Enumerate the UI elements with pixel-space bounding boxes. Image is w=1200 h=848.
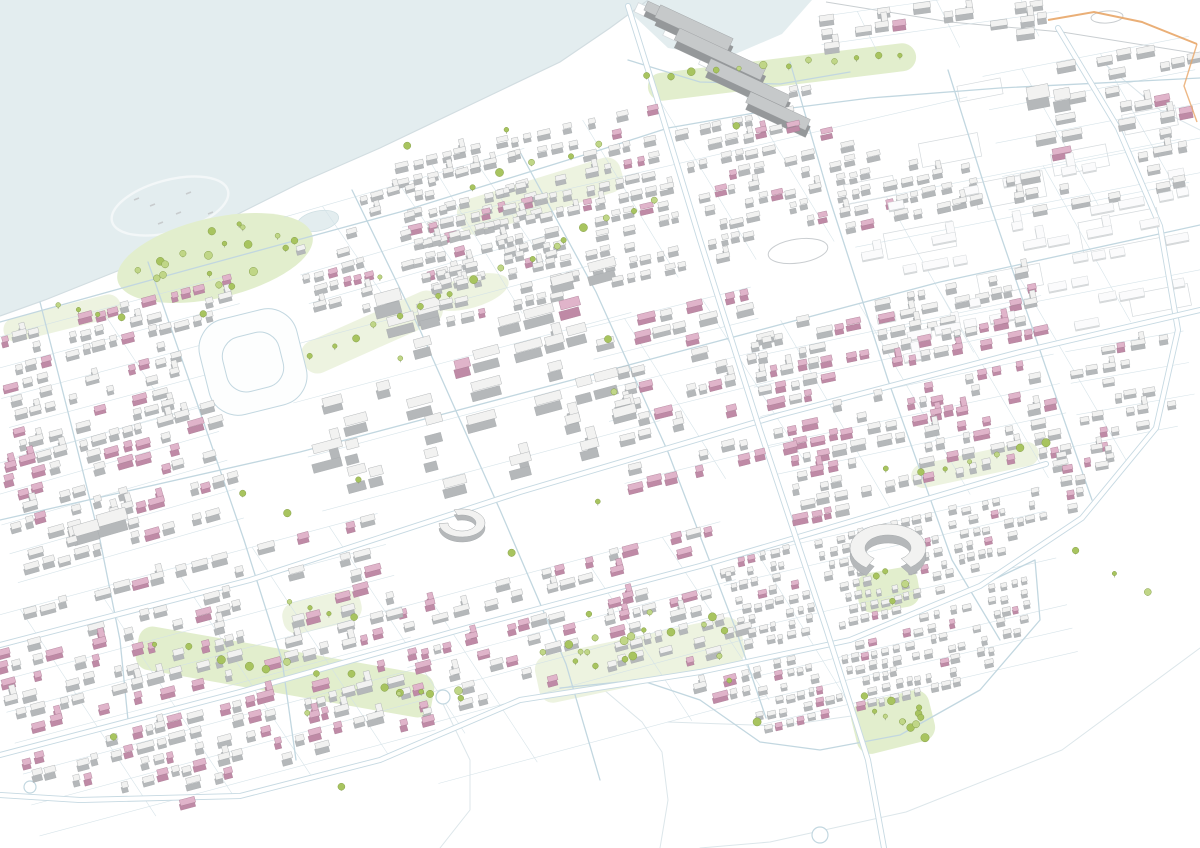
building (376, 380, 391, 400)
building (907, 676, 913, 686)
building (627, 273, 635, 284)
building (808, 603, 815, 613)
building (789, 594, 799, 604)
building (840, 206, 851, 218)
building (731, 583, 737, 592)
building (1015, 316, 1026, 328)
building (947, 450, 959, 462)
building (447, 316, 456, 328)
building (747, 567, 753, 576)
building (744, 639, 753, 650)
building (946, 282, 957, 295)
tree (381, 684, 389, 692)
building (819, 14, 834, 27)
building (19, 439, 27, 452)
building (811, 674, 820, 684)
building (1021, 589, 1028, 598)
building (824, 41, 839, 54)
building (803, 452, 811, 463)
building (816, 492, 829, 506)
building (443, 167, 454, 179)
building (1061, 475, 1073, 487)
building (32, 768, 43, 783)
building (633, 608, 641, 618)
building (792, 483, 799, 496)
building (1111, 426, 1119, 436)
tree (887, 697, 895, 705)
building (934, 610, 940, 619)
building (83, 343, 91, 355)
building (848, 458, 856, 469)
building (132, 642, 144, 657)
building (704, 526, 713, 538)
building (931, 634, 937, 644)
building (660, 308, 673, 322)
building (69, 331, 77, 344)
building (60, 696, 69, 710)
building (439, 205, 447, 216)
building (720, 218, 728, 230)
building (840, 427, 853, 440)
building (988, 596, 996, 605)
building (893, 655, 902, 666)
building (994, 610, 1001, 619)
building (1003, 628, 1012, 639)
building (824, 571, 833, 582)
building (881, 609, 888, 619)
building (235, 565, 244, 577)
building (232, 700, 241, 714)
building (909, 355, 916, 366)
building (754, 603, 762, 613)
building (109, 427, 120, 442)
tree (249, 267, 257, 275)
building (4, 473, 15, 488)
building (1014, 191, 1024, 204)
building (414, 159, 424, 170)
building (678, 261, 686, 271)
building (828, 460, 838, 473)
building (988, 584, 995, 593)
building (942, 328, 952, 341)
building (925, 512, 932, 522)
building (950, 653, 960, 664)
tree (912, 721, 919, 729)
building (875, 21, 889, 33)
building (868, 638, 877, 647)
building (725, 571, 731, 581)
building (931, 683, 939, 693)
building (924, 649, 933, 660)
building (973, 625, 981, 634)
building (956, 467, 964, 478)
building (1138, 151, 1148, 162)
map-viewport[interactable] (0, 0, 1200, 848)
building (426, 154, 438, 166)
building (846, 593, 852, 602)
building (791, 580, 799, 590)
building (624, 159, 633, 169)
city-map-3d-render (0, 0, 1200, 848)
building (951, 605, 958, 615)
building (515, 233, 524, 245)
building (846, 351, 857, 362)
building (758, 686, 768, 696)
building (215, 772, 224, 785)
building (415, 190, 423, 201)
building (912, 652, 920, 661)
building (1084, 457, 1091, 467)
building (1062, 464, 1073, 474)
building (1173, 175, 1186, 189)
building (840, 582, 849, 592)
building (525, 214, 535, 225)
building (971, 384, 980, 396)
building (356, 257, 364, 269)
building (747, 353, 757, 365)
building (319, 641, 328, 655)
tree (204, 251, 212, 259)
building (992, 366, 1001, 376)
building (443, 642, 452, 654)
building (120, 301, 129, 314)
building (809, 687, 815, 697)
building (949, 520, 957, 529)
building (749, 180, 760, 192)
building (122, 425, 133, 438)
building (456, 215, 466, 227)
building (114, 665, 122, 678)
building (604, 163, 611, 174)
building (992, 498, 1000, 507)
building (851, 652, 859, 663)
building (893, 644, 900, 653)
building (303, 274, 311, 284)
building (657, 251, 664, 262)
building (1116, 47, 1131, 61)
building (909, 159, 918, 171)
building (146, 724, 154, 736)
building (825, 695, 835, 705)
building (806, 664, 813, 672)
building (899, 475, 909, 488)
building (22, 758, 31, 771)
building (955, 7, 973, 21)
tree (620, 637, 628, 645)
building (1044, 398, 1057, 412)
building (525, 295, 534, 307)
building (952, 343, 963, 356)
building (865, 589, 871, 597)
building (282, 752, 293, 767)
building (953, 677, 961, 687)
building (869, 660, 877, 671)
building (619, 192, 629, 203)
tree (162, 261, 169, 269)
building (980, 339, 992, 351)
building (171, 291, 178, 302)
building (155, 721, 166, 734)
building (730, 688, 738, 700)
building (773, 573, 781, 582)
building (932, 535, 939, 544)
building (842, 543, 850, 554)
building (232, 713, 244, 728)
building (1121, 359, 1130, 369)
building (109, 335, 117, 348)
building (941, 560, 947, 569)
building (957, 420, 966, 431)
building (679, 623, 689, 636)
building (944, 404, 954, 417)
tree (667, 628, 675, 636)
building (523, 133, 531, 143)
building (745, 198, 754, 209)
building (982, 416, 991, 426)
tree (208, 227, 216, 235)
building (960, 529, 969, 539)
building (959, 554, 965, 564)
building (738, 557, 745, 568)
building (774, 428, 784, 439)
building (807, 215, 814, 227)
building (797, 667, 804, 676)
building (758, 589, 767, 599)
building (425, 190, 435, 201)
building (882, 659, 888, 669)
building (901, 337, 912, 350)
building (1015, 2, 1027, 15)
roundabout (812, 827, 828, 843)
building (783, 544, 790, 555)
building (1040, 512, 1048, 521)
building (428, 177, 436, 187)
building (569, 140, 578, 151)
building (545, 257, 555, 269)
building (774, 670, 783, 681)
building (753, 666, 761, 679)
building (504, 254, 513, 265)
building (821, 709, 830, 720)
building (1021, 15, 1035, 28)
building (157, 738, 167, 750)
building (883, 671, 889, 681)
building (638, 156, 645, 167)
building (808, 357, 819, 370)
tree (921, 734, 929, 742)
building (819, 551, 825, 561)
building (808, 712, 816, 721)
building (1100, 427, 1108, 438)
building (1026, 84, 1050, 111)
building (920, 396, 927, 408)
building (979, 323, 989, 333)
building (373, 627, 384, 640)
building (1080, 416, 1089, 425)
building (786, 608, 794, 618)
building (859, 349, 869, 360)
building (771, 561, 777, 572)
building (69, 393, 77, 405)
building (918, 290, 925, 301)
building (1115, 393, 1122, 404)
building (726, 404, 737, 419)
building (774, 658, 782, 669)
building (769, 585, 777, 595)
building (791, 455, 799, 466)
building (175, 563, 187, 578)
building (1068, 503, 1078, 514)
tree (217, 656, 225, 664)
building (863, 676, 870, 686)
building (617, 366, 630, 380)
building (329, 690, 338, 702)
building (454, 357, 471, 379)
building (1179, 106, 1193, 120)
building (945, 568, 953, 578)
building (555, 174, 566, 186)
building (991, 287, 1002, 301)
building (1020, 615, 1029, 624)
building (816, 686, 823, 695)
building (1008, 531, 1018, 542)
tree (1016, 444, 1024, 452)
building (984, 536, 992, 545)
tree (455, 687, 463, 695)
building (882, 683, 891, 692)
building (788, 668, 795, 676)
building (997, 547, 1006, 556)
building (798, 606, 804, 615)
building (861, 613, 870, 623)
building (801, 627, 810, 636)
building (346, 521, 356, 534)
building (934, 547, 943, 557)
building (515, 250, 524, 261)
building (422, 272, 431, 283)
building (1010, 298, 1022, 312)
building (969, 462, 977, 474)
building (1017, 517, 1024, 527)
building (764, 724, 773, 734)
building (1002, 606, 1011, 617)
building (815, 539, 823, 548)
building (848, 566, 855, 576)
building (797, 690, 805, 700)
tree (1042, 439, 1050, 447)
building (781, 683, 788, 692)
building (836, 693, 842, 702)
building (716, 359, 728, 374)
building (855, 25, 872, 37)
building (1004, 518, 1014, 529)
building (796, 315, 809, 328)
building (386, 591, 394, 605)
building (941, 680, 951, 690)
building (1086, 364, 1098, 376)
building (1007, 454, 1016, 465)
building (789, 620, 796, 629)
building (498, 239, 505, 250)
building (471, 143, 481, 155)
building (699, 384, 708, 395)
building (1060, 183, 1069, 195)
building (963, 432, 970, 444)
building (333, 721, 342, 734)
building (181, 287, 191, 299)
building (982, 527, 990, 536)
building (136, 500, 147, 513)
building (770, 622, 776, 632)
building (801, 85, 811, 96)
building (587, 185, 595, 197)
building (265, 709, 276, 722)
building (760, 550, 766, 560)
building (309, 710, 320, 724)
building (133, 725, 144, 739)
building (162, 463, 172, 475)
building (962, 447, 975, 460)
building (471, 212, 480, 223)
tree (245, 662, 253, 670)
building (421, 648, 429, 660)
building (837, 535, 846, 544)
building (83, 671, 95, 686)
building (705, 205, 715, 217)
building (304, 698, 312, 710)
building (740, 289, 749, 302)
building (984, 658, 993, 668)
tree (353, 335, 360, 343)
building (894, 595, 902, 605)
building (903, 628, 911, 638)
building (507, 236, 514, 247)
tree (629, 652, 637, 660)
tree (348, 670, 355, 678)
building (232, 748, 244, 762)
building (245, 695, 255, 708)
building (354, 274, 362, 285)
building (351, 568, 362, 583)
building (839, 621, 846, 629)
building (1021, 577, 1027, 586)
building (892, 585, 898, 594)
building (223, 766, 233, 779)
building (612, 129, 622, 140)
building (201, 639, 210, 653)
building (699, 159, 707, 170)
building (989, 647, 995, 656)
building (756, 371, 767, 383)
building (933, 571, 942, 581)
building (857, 412, 867, 423)
building (958, 642, 966, 651)
building (742, 603, 751, 614)
building (556, 206, 564, 217)
building (1, 336, 8, 349)
building (759, 624, 768, 633)
building (856, 665, 866, 675)
building (914, 209, 923, 220)
building (139, 608, 149, 622)
tree (565, 641, 573, 649)
building (1023, 600, 1030, 610)
building (157, 341, 166, 352)
building (871, 651, 877, 660)
building (1159, 334, 1168, 345)
building (1031, 487, 1039, 497)
building (770, 365, 777, 378)
